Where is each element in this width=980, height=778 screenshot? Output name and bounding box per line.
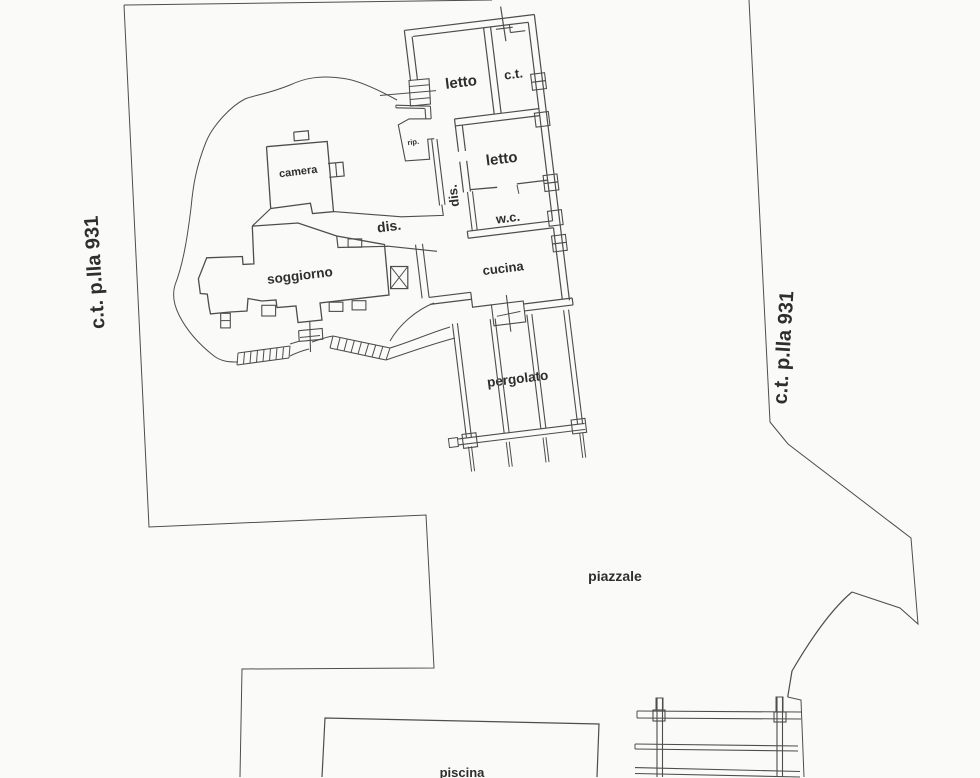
- svg-text:rip.: rip.: [407, 137, 420, 147]
- svg-text:dis.: dis.: [376, 217, 402, 236]
- svg-text:piazzale: piazzale: [588, 568, 642, 584]
- svg-text:dis.: dis.: [445, 184, 463, 208]
- svg-text:w.c.: w.c.: [494, 209, 521, 227]
- svg-text:piscina: piscina: [440, 765, 486, 778]
- svg-text:c.t.: c.t.: [503, 65, 523, 82]
